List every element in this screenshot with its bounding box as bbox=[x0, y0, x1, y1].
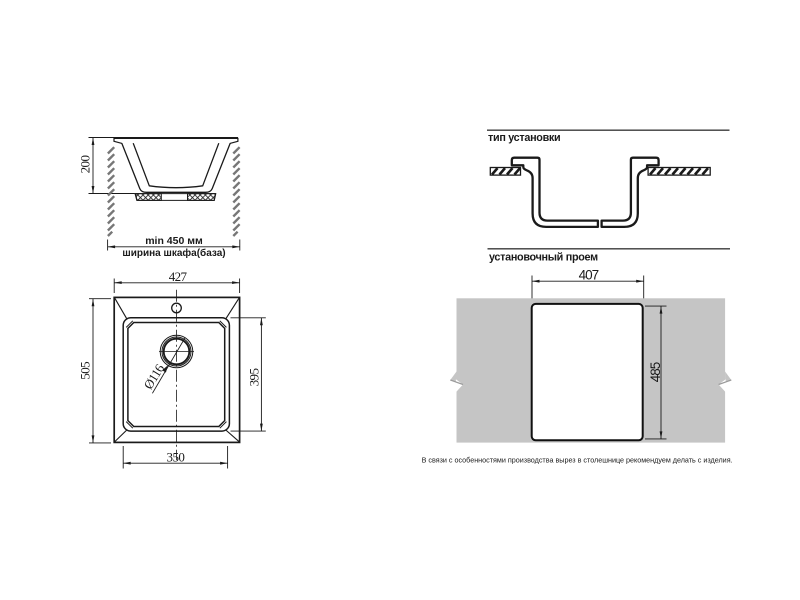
svg-text:Ø116: Ø116 bbox=[140, 361, 167, 392]
svg-text:485: 485 bbox=[648, 362, 663, 382]
svg-text:ширина шкафа(база): ширина шкафа(база) bbox=[122, 247, 225, 259]
svg-text:407: 407 bbox=[579, 267, 599, 282]
svg-text:427: 427 bbox=[169, 269, 188, 284]
svg-text:505: 505 bbox=[78, 362, 93, 380]
svg-text:350: 350 bbox=[167, 449, 185, 464]
svg-text:В связи с особенностями произв: В связи с особенностями производства выр… bbox=[422, 456, 733, 465]
svg-text:200: 200 bbox=[77, 156, 92, 174]
svg-text:тип установки: тип установки bbox=[488, 132, 560, 144]
svg-text:установочный проем: установочный проем bbox=[489, 252, 598, 264]
svg-text:395: 395 bbox=[246, 369, 261, 387]
svg-text:min 450 мм: min 450 мм bbox=[145, 235, 203, 247]
